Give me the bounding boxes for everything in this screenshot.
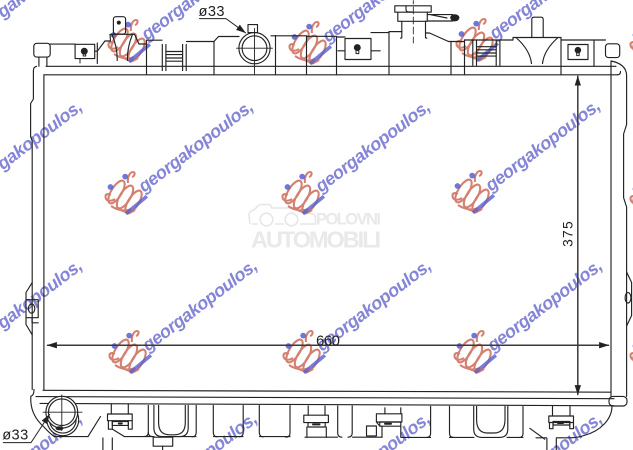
- svg-text:375: 375: [561, 221, 576, 247]
- svg-text:AUTOMOBILI: AUTOMOBILI: [251, 227, 381, 253]
- svg-text:ø33: ø33: [199, 4, 225, 20]
- svg-text:ø33: ø33: [2, 427, 28, 443]
- svg-text:660: 660: [316, 333, 340, 350]
